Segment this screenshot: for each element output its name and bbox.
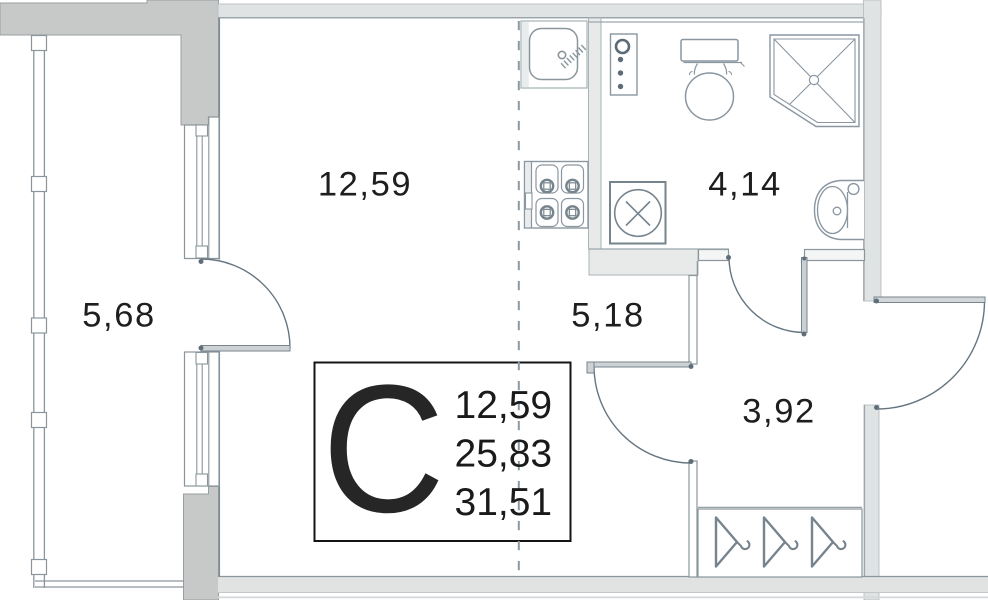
svg-text:4,14: 4,14	[708, 166, 782, 204]
svg-text:3,92: 3,92	[742, 393, 816, 431]
svg-text:С: С	[322, 348, 445, 550]
svg-text:5,68: 5,68	[82, 297, 156, 335]
svg-text:12,59: 12,59	[318, 166, 412, 204]
svg-text:5,18: 5,18	[571, 297, 645, 335]
svg-text:12,59: 12,59	[455, 384, 553, 427]
svg-text:31,51: 31,51	[455, 481, 553, 524]
svg-text:25,83: 25,83	[455, 433, 553, 476]
